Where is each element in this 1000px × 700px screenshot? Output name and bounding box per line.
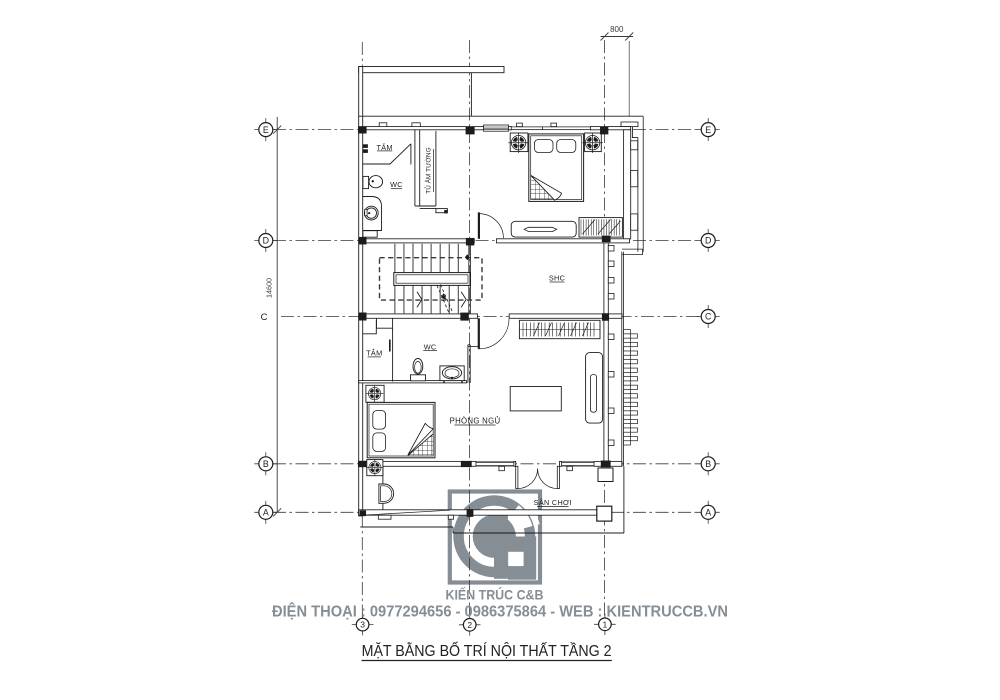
svg-text:3: 3 [360,620,365,630]
svg-text:B: B [263,459,269,469]
svg-text:WC: WC [390,180,403,189]
svg-text:B: B [705,459,711,469]
svg-text:WC: WC [424,342,437,351]
svg-text:PHÒNG NGỦ: PHÒNG NGỦ [450,416,501,425]
svg-text:D: D [263,236,269,246]
svg-text:C: C [705,312,712,322]
svg-text:TẮM: TẮM [366,349,382,358]
svg-text:C: C [261,312,268,323]
svg-text:SHC: SHC [549,273,565,282]
svg-text:D: D [705,236,711,246]
svg-text:ĐIỆN THOẠI : 0977294656 - 0986: ĐIỆN THOẠI : 0977294656 - 0986375864 - W… [272,603,728,621]
svg-text:KIẾN TRÚC C&B: KIẾN TRÚC C&B [446,586,544,603]
svg-text:TỦ ÂM TƯỜNG: TỦ ÂM TƯỜNG [424,147,433,193]
svg-text:MẶT BẰNG BỐ TRÍ NỘI THẤT TẦNG: MẶT BẰNG BỐ TRÍ NỘI THẤT TẦNG 2 [362,640,612,660]
svg-text:A: A [705,507,711,517]
svg-text:14600: 14600 [265,278,274,298]
svg-text:2: 2 [467,620,472,630]
svg-text:E: E [705,125,711,135]
svg-text:1: 1 [603,619,608,629]
svg-text:800: 800 [610,25,624,34]
svg-text:E: E [263,125,269,135]
svg-text:A: A [263,507,269,517]
svg-text:SÂN CHƠI: SÂN CHƠI [534,498,572,507]
